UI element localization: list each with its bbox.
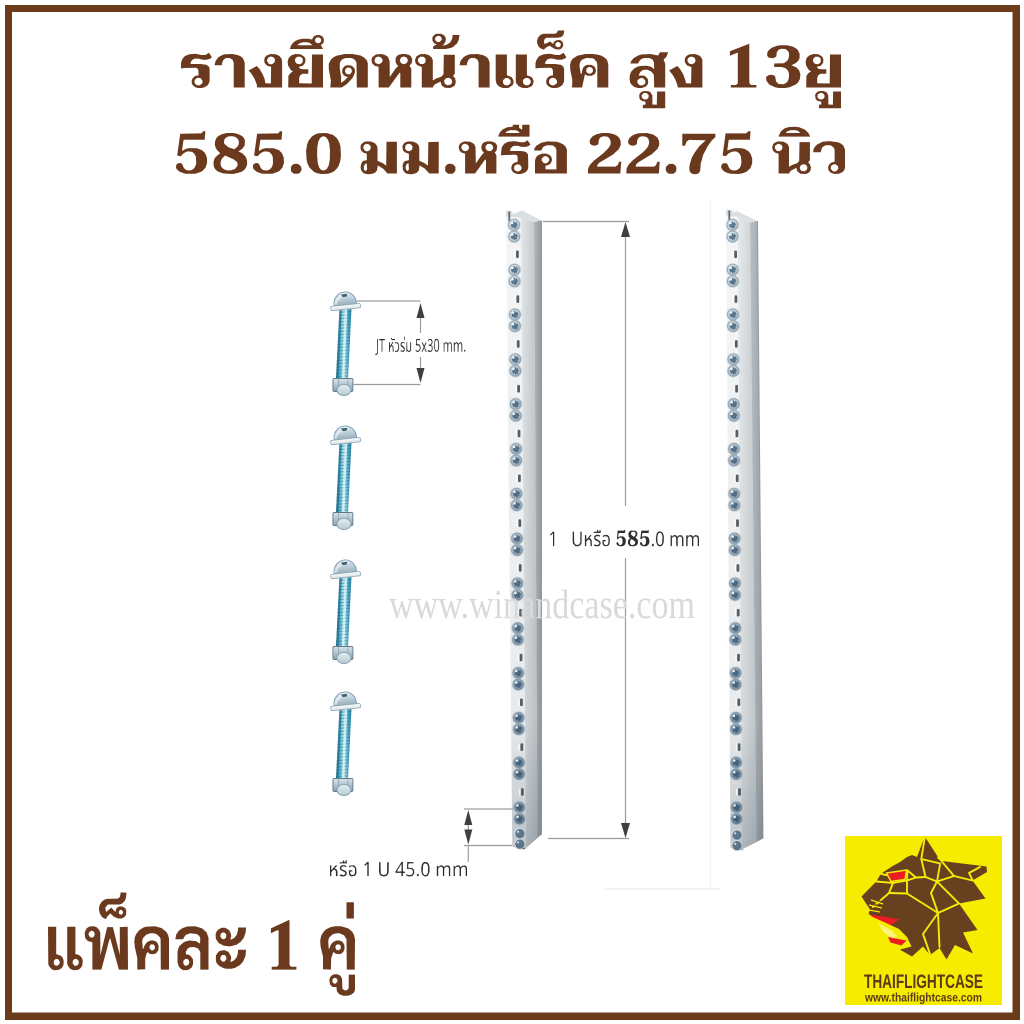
svg-text:www.thaiflightcase.com: www.thaiflightcase.com — [864, 993, 982, 1005]
svg-text:www.winandcase.com: www.winandcase.com — [389, 581, 695, 627]
svg-text:THAIFLIGHTCASE: THAIFLIGHTCASE — [864, 972, 983, 993]
